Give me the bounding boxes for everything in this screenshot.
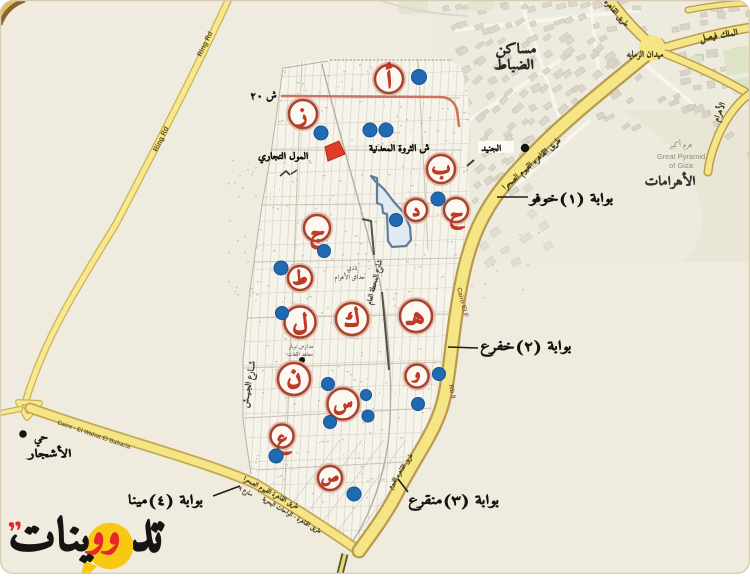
- svg-text:Great Pyramid: Great Pyramid: [657, 152, 705, 161]
- svg-text:of Giza: of Giza: [669, 161, 694, 170]
